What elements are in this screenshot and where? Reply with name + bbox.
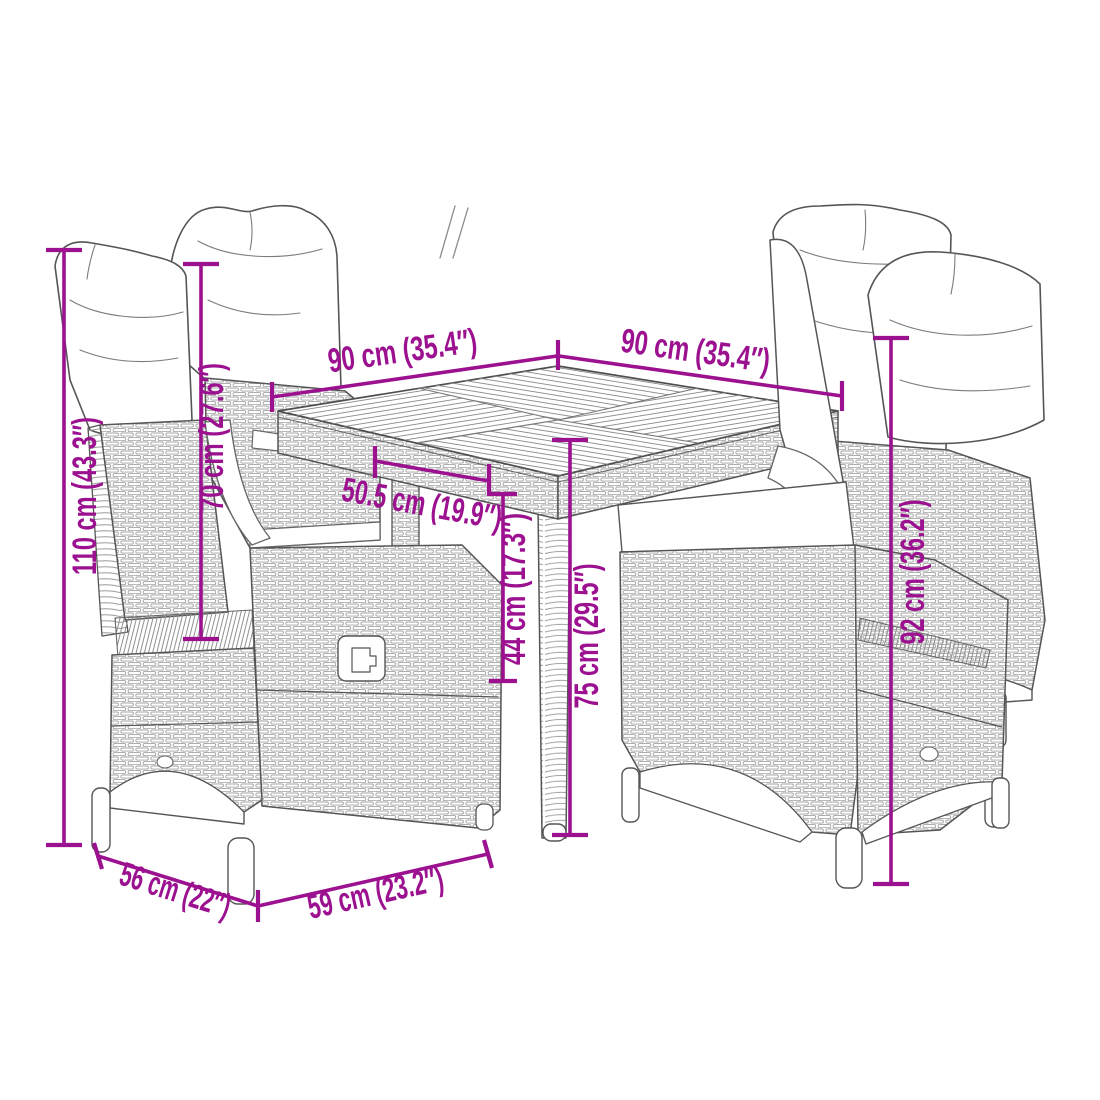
chair-leg bbox=[622, 768, 639, 822]
label-seat-height: 44 cm (17.3″) bbox=[495, 513, 533, 665]
chair-leg bbox=[836, 828, 862, 888]
chair-frame-lines bbox=[440, 206, 468, 258]
label-table-depth: 90 cm (35.4″) bbox=[619, 322, 773, 381]
table-foot bbox=[543, 824, 566, 841]
chair-foot bbox=[476, 804, 493, 830]
drain-hole bbox=[920, 747, 938, 761]
label-chair-width: 59 cm (23.2″) bbox=[304, 860, 447, 927]
recline-plate bbox=[338, 636, 385, 681]
back-cushion bbox=[55, 242, 192, 436]
chair-leg bbox=[992, 778, 1009, 828]
table-leg-front bbox=[538, 505, 570, 838]
label-chair-total-height: 110 cm (43.3″) bbox=[66, 417, 104, 575]
label-chair-depth: 56 cm (22″) bbox=[115, 855, 235, 926]
label-chair-back-height: 92 cm (36.2″) bbox=[894, 500, 932, 645]
label-backrest-height: 70 cm (27.6″) bbox=[193, 363, 231, 511]
chair-leg bbox=[92, 788, 110, 852]
back-cushion bbox=[868, 252, 1044, 444]
label-table-height: 75 cm (29.5″) bbox=[568, 564, 606, 709]
dimension-diagram: 90 cm (35.4″) 90 cm (35.4″) 110 cm (43.3… bbox=[0, 0, 1100, 1100]
drain-hole bbox=[157, 756, 173, 768]
side-panel bbox=[250, 545, 502, 828]
